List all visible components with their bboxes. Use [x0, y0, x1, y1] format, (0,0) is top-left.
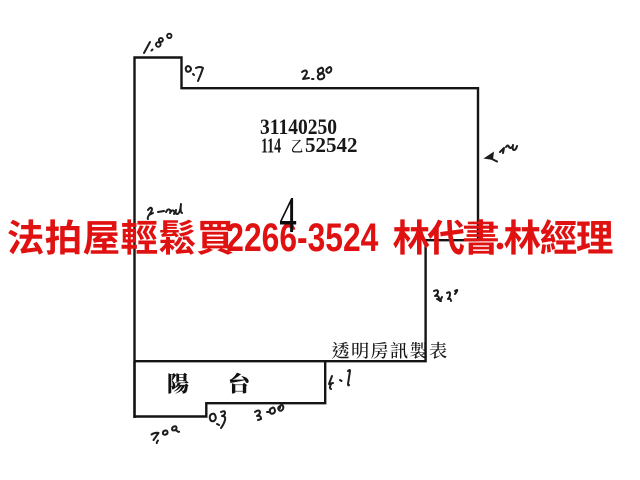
svg-text:2266-3524: 2266-3524	[226, 216, 379, 260]
svg-text:52542: 52542	[305, 133, 358, 157]
svg-text:114: 114	[261, 133, 281, 157]
